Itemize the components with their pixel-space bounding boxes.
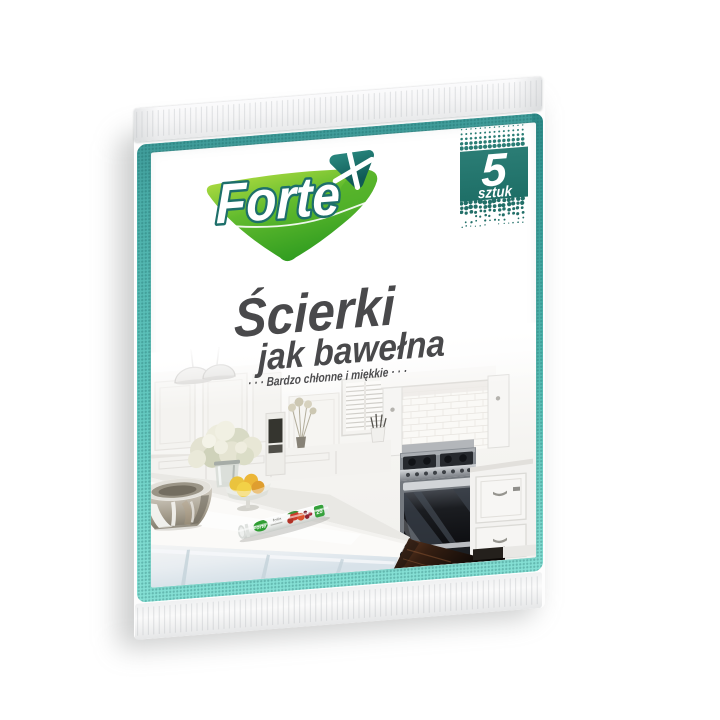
svg-text:Forte: Forte [216,163,340,236]
svg-text:sztuk: sztuk [478,183,513,203]
